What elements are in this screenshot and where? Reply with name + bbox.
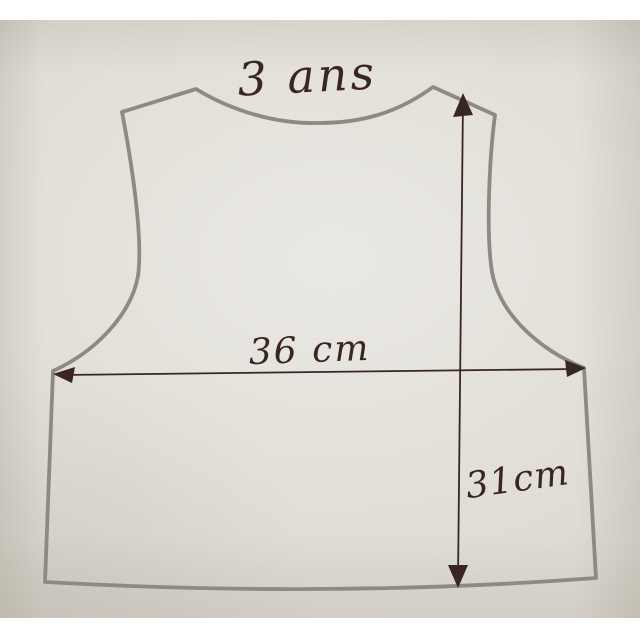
height-measurement-label: 31cm [463, 452, 572, 507]
photo-frame: 3 ans 36 cm 31cm [0, 0, 640, 638]
height-arrow [448, 93, 473, 588]
width-measurement-label: 36 cm [248, 328, 371, 373]
pattern-drawing: 3 ans 36 cm 31cm [0, 0, 640, 638]
size-label: 3 ans [236, 45, 378, 106]
height-arrow-line [458, 100, 463, 580]
